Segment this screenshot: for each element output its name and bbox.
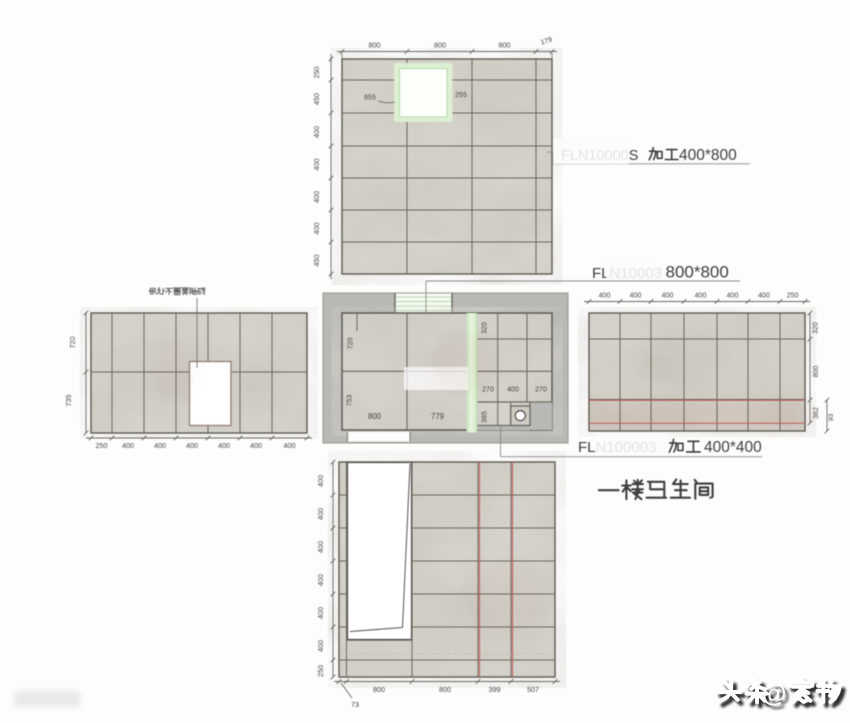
svg-text:400: 400 xyxy=(250,441,262,450)
svg-text:400*800: 400*800 xyxy=(679,147,737,164)
svg-text:800: 800 xyxy=(439,685,451,694)
svg-text:400: 400 xyxy=(630,293,642,300)
svg-text:320: 320 xyxy=(482,322,489,334)
svg-text:250: 250 xyxy=(96,441,108,450)
svg-text:362: 362 xyxy=(813,407,820,419)
svg-text:270: 270 xyxy=(535,387,547,394)
svg-text:400*400: 400*400 xyxy=(704,439,762,456)
svg-text:735: 735 xyxy=(64,395,73,407)
svg-text:400: 400 xyxy=(316,508,325,520)
svg-text:800: 800 xyxy=(369,41,381,50)
svg-text:@: @ xyxy=(762,680,786,708)
svg-text:400: 400 xyxy=(122,441,134,450)
svg-text:250: 250 xyxy=(312,67,321,79)
svg-text:779: 779 xyxy=(431,412,444,421)
svg-text:400: 400 xyxy=(695,293,707,300)
svg-text:73: 73 xyxy=(351,700,359,709)
svg-text:753: 753 xyxy=(347,395,354,407)
svg-text:400: 400 xyxy=(316,475,325,487)
svg-text:250: 250 xyxy=(316,665,325,677)
svg-text:400: 400 xyxy=(599,293,611,300)
svg-text:450: 450 xyxy=(312,255,321,267)
svg-text:385: 385 xyxy=(482,411,489,423)
svg-text:320: 320 xyxy=(813,322,820,334)
svg-text:400: 400 xyxy=(758,293,770,300)
svg-text:250: 250 xyxy=(787,293,799,300)
svg-text:400: 400 xyxy=(316,640,325,652)
svg-text:400: 400 xyxy=(316,607,325,619)
svg-text:270: 270 xyxy=(482,387,494,394)
svg-text:400: 400 xyxy=(316,574,325,586)
svg-text:255: 255 xyxy=(455,92,467,99)
svg-text:400: 400 xyxy=(312,159,321,171)
svg-text:400: 400 xyxy=(507,387,519,394)
svg-text:400: 400 xyxy=(218,441,230,450)
svg-text:800: 800 xyxy=(499,41,511,50)
svg-text:655: 655 xyxy=(364,95,376,102)
svg-text:400: 400 xyxy=(727,293,739,300)
svg-text:400: 400 xyxy=(186,441,198,450)
svg-text:450: 450 xyxy=(312,93,321,105)
svg-text:400: 400 xyxy=(316,541,325,553)
svg-text:720: 720 xyxy=(68,337,77,349)
svg-text:399: 399 xyxy=(489,685,501,694)
svg-text:400: 400 xyxy=(154,441,166,450)
svg-text:800: 800 xyxy=(373,685,385,694)
svg-text:400: 400 xyxy=(312,223,321,235)
svg-text:800: 800 xyxy=(434,41,446,50)
svg-text:400: 400 xyxy=(284,441,296,450)
svg-text:93: 93 xyxy=(828,414,835,422)
svg-text:507: 507 xyxy=(527,685,539,694)
svg-text:400: 400 xyxy=(662,293,674,300)
svg-text:720: 720 xyxy=(348,338,355,350)
svg-text:800: 800 xyxy=(813,366,820,378)
svg-text:400: 400 xyxy=(312,191,321,203)
svg-text:800*800: 800*800 xyxy=(666,263,729,282)
svg-text:800: 800 xyxy=(368,412,382,421)
svg-text:400: 400 xyxy=(312,126,321,138)
